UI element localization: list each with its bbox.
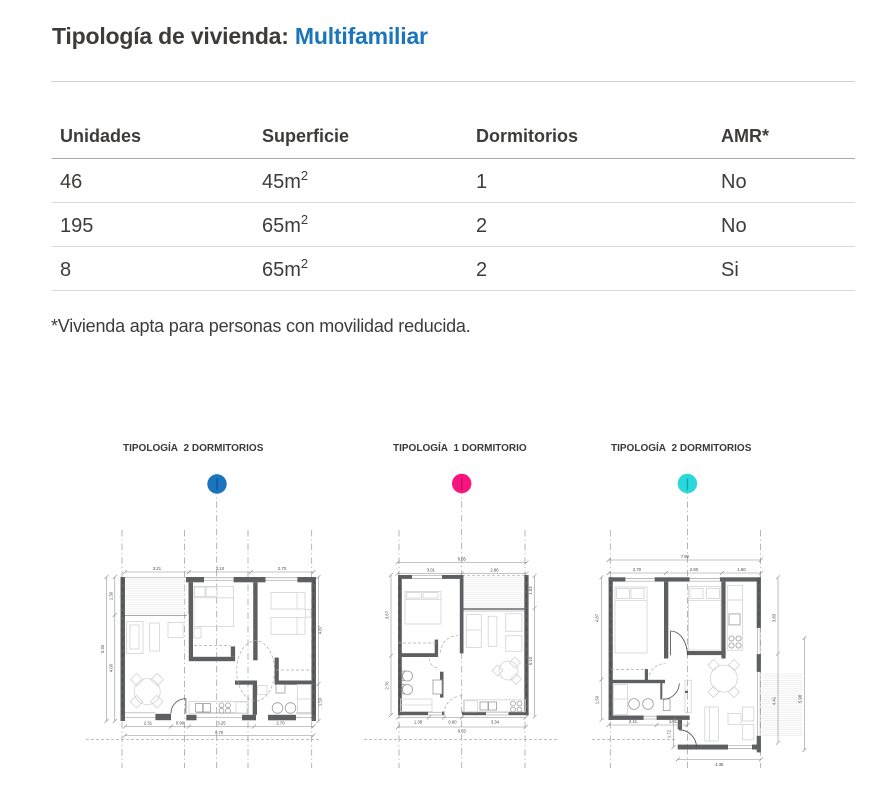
svg-text:3.10: 3.10	[216, 566, 225, 571]
svg-text:6.65: 6.65	[458, 556, 467, 561]
svg-text:0.90: 0.90	[176, 721, 185, 726]
svg-text:5.30: 5.30	[100, 644, 105, 653]
svg-text:4.41: 4.41	[772, 696, 777, 705]
svg-text:1.50: 1.50	[318, 697, 323, 706]
svg-text:1.50: 1.50	[595, 695, 600, 704]
svg-text:5.98: 5.98	[798, 694, 803, 703]
svg-text:2.70: 2.70	[276, 721, 285, 726]
svg-text:2.41: 2.41	[629, 719, 638, 724]
svg-text:4.87: 4.87	[318, 625, 323, 634]
svg-text:1.60: 1.60	[737, 567, 746, 572]
svg-text:1.53: 1.53	[528, 586, 533, 595]
svg-text:2.76: 2.76	[385, 681, 390, 690]
svg-text:0.90: 0.90	[448, 720, 457, 725]
svg-text:3.25: 3.25	[217, 721, 226, 726]
svg-text:3.67: 3.67	[385, 610, 390, 619]
svg-text:2.31: 2.31	[144, 721, 153, 726]
svg-text:4.87: 4.87	[595, 613, 600, 622]
svg-text:9.70: 9.70	[215, 730, 224, 735]
svg-text:2.86: 2.86	[490, 568, 499, 573]
svg-text:1.30: 1.30	[109, 591, 114, 600]
svg-text:7.89: 7.89	[681, 554, 690, 559]
svg-text:3.01: 3.01	[427, 568, 436, 573]
svg-text:2.80: 2.80	[690, 567, 699, 572]
svg-text:5.10: 5.10	[528, 656, 533, 665]
svg-text:6.55: 6.55	[458, 729, 467, 734]
svg-text:3.21: 3.21	[153, 566, 162, 571]
svg-text:3.34: 3.34	[491, 720, 500, 725]
svg-text:1.72: 1.72	[667, 729, 672, 738]
svg-text:1.38: 1.38	[414, 720, 423, 725]
svg-text:3.83: 3.83	[772, 613, 777, 622]
svg-text:4.38: 4.38	[715, 762, 724, 767]
svg-text:4.00: 4.00	[109, 663, 114, 672]
svg-text:2.70: 2.70	[278, 566, 287, 571]
svg-text:2.70: 2.70	[633, 567, 642, 572]
